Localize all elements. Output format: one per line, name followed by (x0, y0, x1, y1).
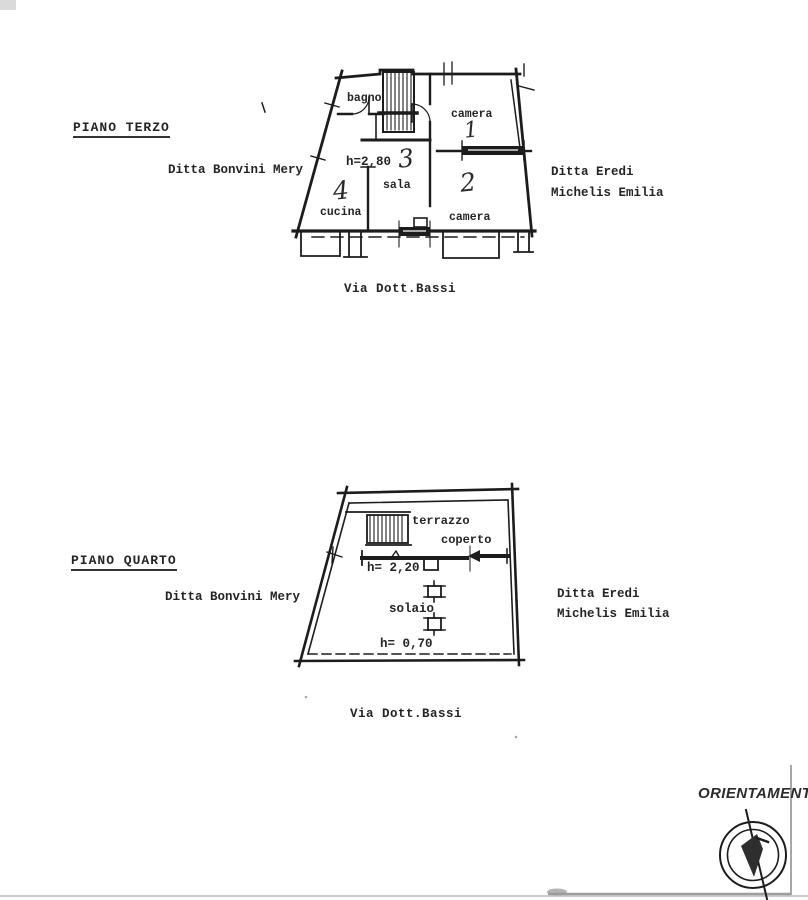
room-number-camera1: 1 (463, 117, 480, 143)
room-label-coperto: coperto (441, 533, 491, 547)
room-label-sala: sala (383, 179, 411, 192)
scanned-floorplan-page: PIANO TERZO Ditta Bonvini Mery Ditta Ere… (0, 0, 808, 900)
room-number-camera2: 2 (459, 167, 478, 198)
owner-left-quarto: Ditta Bonvini Mery (165, 590, 300, 604)
owner-right-terzo-line1: Ditta Eredi (551, 165, 634, 179)
owner-left-terzo: Ditta Bonvini Mery (168, 163, 303, 177)
height-note-quarto-upper: h= 2,20 (367, 561, 420, 575)
stairs-piano-quarto (346, 512, 411, 545)
street-label-quarto: Via Dott.Bassi (350, 707, 462, 721)
room-label-bagno: bagno (347, 92, 382, 105)
room-number-cucina: 4 (332, 175, 351, 206)
camera-divider-wall (437, 141, 531, 160)
owner-right-quarto-line1: Ditta Eredi (557, 587, 640, 601)
orientamento-label: ORIENTAMENTO (698, 785, 808, 802)
height-note-quarto-lower: h= 0,70 (380, 637, 433, 651)
height-note-terzo: h=2,80 (346, 155, 391, 169)
room-label-camera2: camera (449, 211, 490, 224)
piano-quarto-heading: PIANO QUARTO (71, 553, 177, 571)
room-label-solaio: solaio (389, 602, 434, 616)
stairs-piano-terzo (379, 72, 417, 132)
room-label-terrazzo: terrazzo (412, 514, 470, 528)
owner-right-quarto-line2: Michelis Emilia (557, 607, 670, 621)
chimney-symbol-lower (424, 613, 445, 635)
room-label-cucina: cucina (320, 206, 361, 219)
orientation-compass (720, 810, 786, 899)
owner-right-terzo-line2: Michelis Emilia (551, 186, 664, 200)
room-number-sala: 3 (397, 143, 416, 174)
piano-terzo-heading: PIANO TERZO (73, 120, 170, 138)
bottom-window-band (399, 218, 430, 247)
chimney-symbol-upper (424, 581, 445, 602)
street-label-terzo: Via Dott.Bassi (344, 282, 456, 296)
